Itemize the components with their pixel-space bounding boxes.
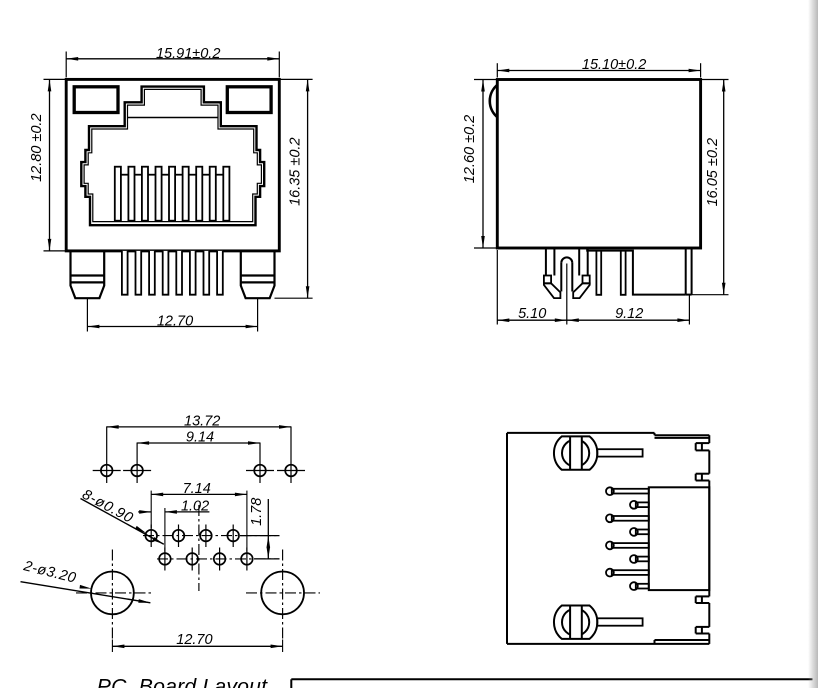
- svg-text:9.12: 9.12: [615, 306, 643, 322]
- svg-text:1.78: 1.78: [249, 498, 265, 526]
- svg-text:12.70: 12.70: [157, 314, 193, 330]
- svg-text:12.80 ±0.2: 12.80 ±0.2: [29, 113, 45, 181]
- svg-text:13.72: 13.72: [184, 413, 220, 429]
- svg-text:1.02: 1.02: [181, 498, 209, 514]
- svg-text:16.05 ±0.2: 16.05 ±0.2: [705, 138, 721, 206]
- svg-text:8-ø0.90: 8-ø0.90: [79, 487, 136, 527]
- svg-text:12.70: 12.70: [176, 632, 212, 648]
- svg-text:15.10±0.2: 15.10±0.2: [582, 57, 646, 73]
- svg-text:5.10: 5.10: [518, 306, 546, 322]
- svg-text:15.91±0.2: 15.91±0.2: [156, 46, 220, 62]
- svg-text:2-ø3.20: 2-ø3.20: [21, 558, 78, 587]
- svg-text:16.35 ±0.2: 16.35 ±0.2: [288, 137, 304, 205]
- svg-text:7.14: 7.14: [183, 481, 211, 497]
- svg-text:9.14: 9.14: [186, 430, 214, 446]
- svg-text:PC. Board Layout: PC. Board Layout: [97, 676, 268, 688]
- svg-text:12.60 ±0.2: 12.60 ±0.2: [462, 115, 478, 183]
